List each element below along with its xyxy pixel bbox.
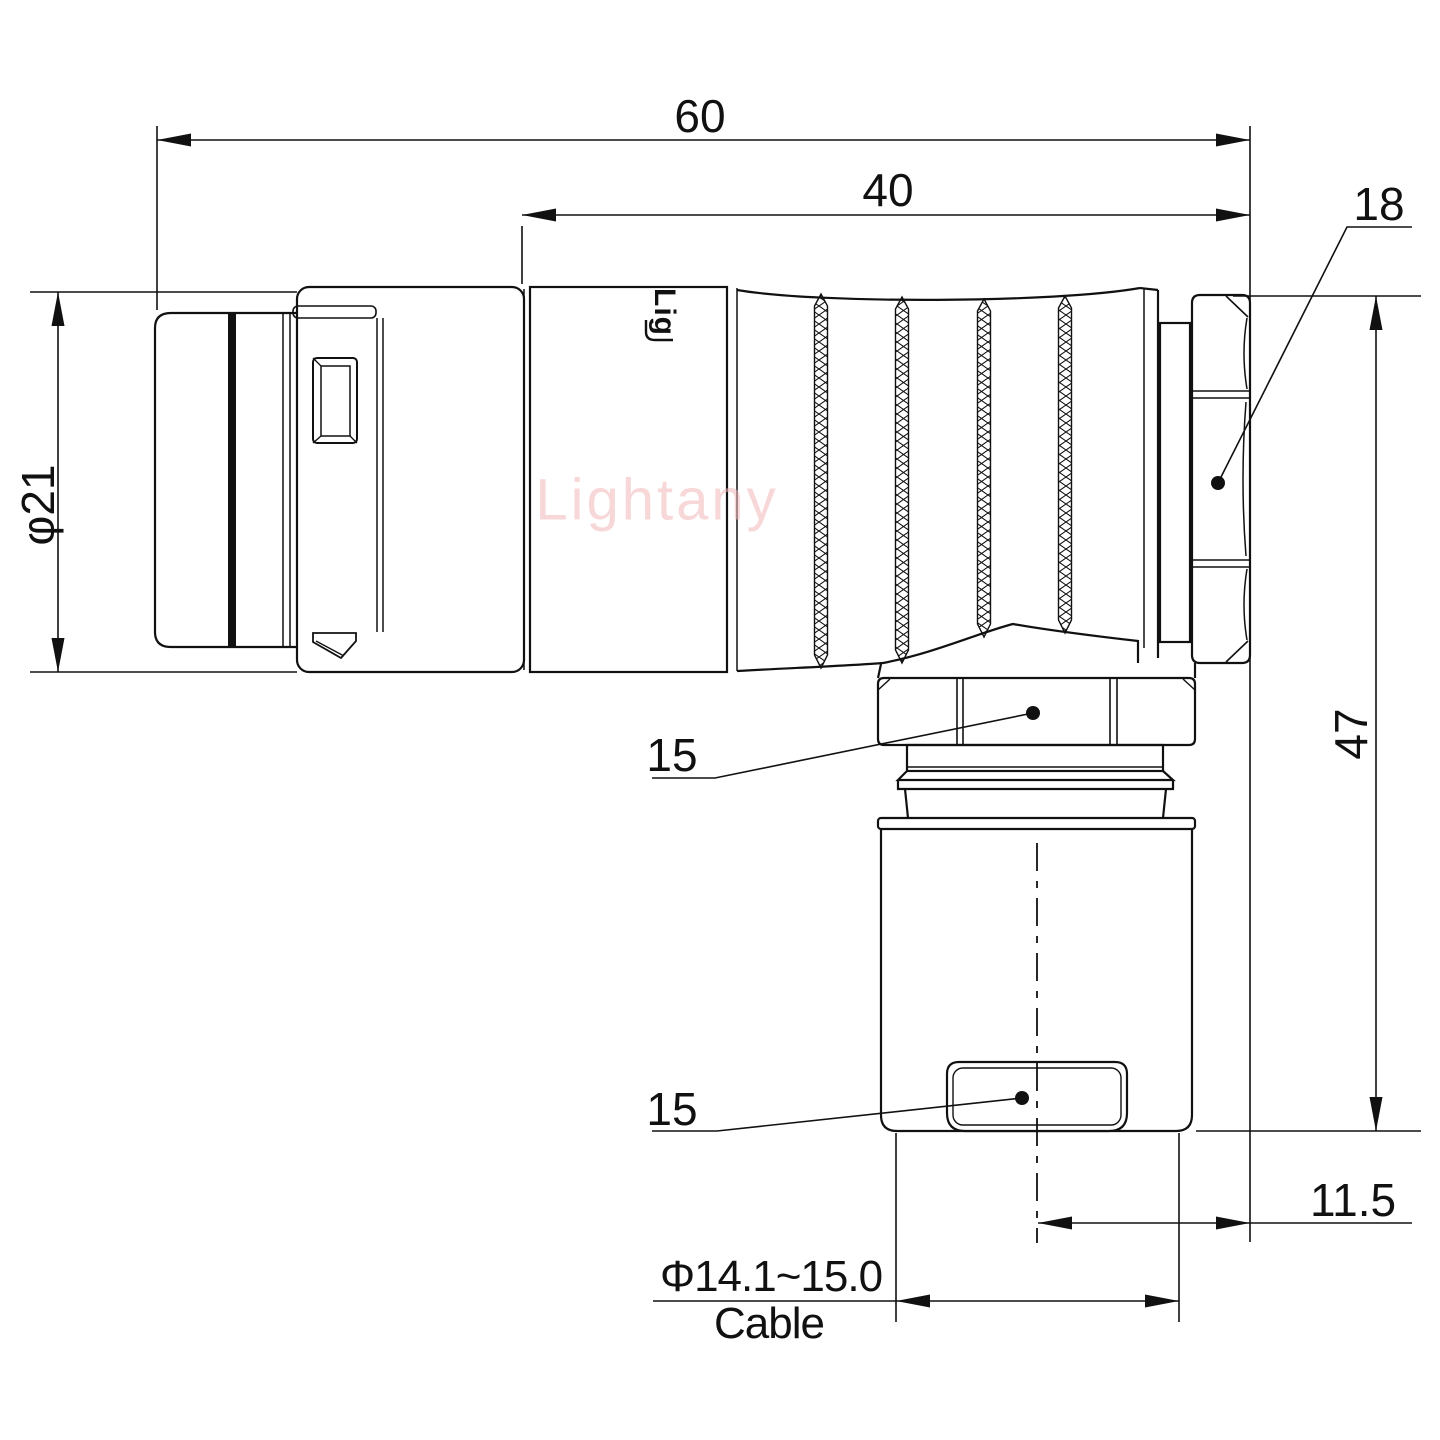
left-cap (155, 313, 297, 647)
dim-label-overall-length: 60 (674, 93, 725, 139)
arrow-40-right (1216, 209, 1250, 222)
arrow-cable-right (1145, 1295, 1179, 1308)
arrow-60-left (157, 134, 191, 147)
dim-label-cable-diameter: Φ14.1~15.0 (660, 1255, 882, 1299)
gland-collar (898, 745, 1173, 818)
leader-dot-15-bottom (1015, 1091, 1029, 1105)
dim-label-nut-flats: 18 (1353, 181, 1404, 227)
bayonet-tab (313, 633, 356, 658)
ext-lines-phi21 (30, 292, 297, 672)
dim-label-height: 47 (1328, 708, 1374, 759)
boot (737, 288, 1158, 671)
arrow-11-5-right (1216, 1217, 1250, 1230)
arrow-phi21-up (52, 292, 65, 326)
dim-label-rear-length: 40 (862, 167, 913, 213)
barrel (293, 287, 524, 672)
arrow-cable-left (896, 1295, 930, 1308)
arrow-47-down (1370, 1097, 1383, 1131)
leader-18 (1218, 227, 1412, 483)
washer (1160, 323, 1190, 642)
leader-dots (1015, 476, 1225, 1105)
arrow-phi21-down (52, 638, 65, 672)
dimension-lines (30, 126, 1421, 1322)
arrow-47-up (1370, 296, 1383, 330)
arrow-11-5-left (1038, 1217, 1072, 1230)
elbow-body (878, 663, 1195, 678)
technical-drawing-canvas: 60 40 18 φ21 47 15 15 11.5 Φ14.1~15.0 Ca… (0, 0, 1440, 1440)
dim-label-cable-word: Cable (714, 1302, 824, 1346)
watermark: Lightany (535, 467, 778, 534)
dim-label-shell-diameter: φ21 (15, 465, 61, 546)
bayonet-window (313, 358, 357, 443)
dim-label-hex-bottom: 15 (646, 1086, 697, 1132)
drawing-lineart (0, 0, 1440, 1440)
arrow-40-left (522, 209, 556, 222)
leader-dot-15-top (1026, 706, 1040, 720)
dim-label-offset: 11.5 (1310, 1177, 1396, 1223)
dim-label-hex-top: 15 (646, 732, 697, 778)
arrow-60-right (1216, 134, 1250, 147)
brand-engraving: Lig (647, 288, 681, 336)
connector-side-view (155, 287, 1250, 1243)
knurl-bands (815, 294, 1072, 668)
leader-dot-18 (1211, 476, 1225, 490)
